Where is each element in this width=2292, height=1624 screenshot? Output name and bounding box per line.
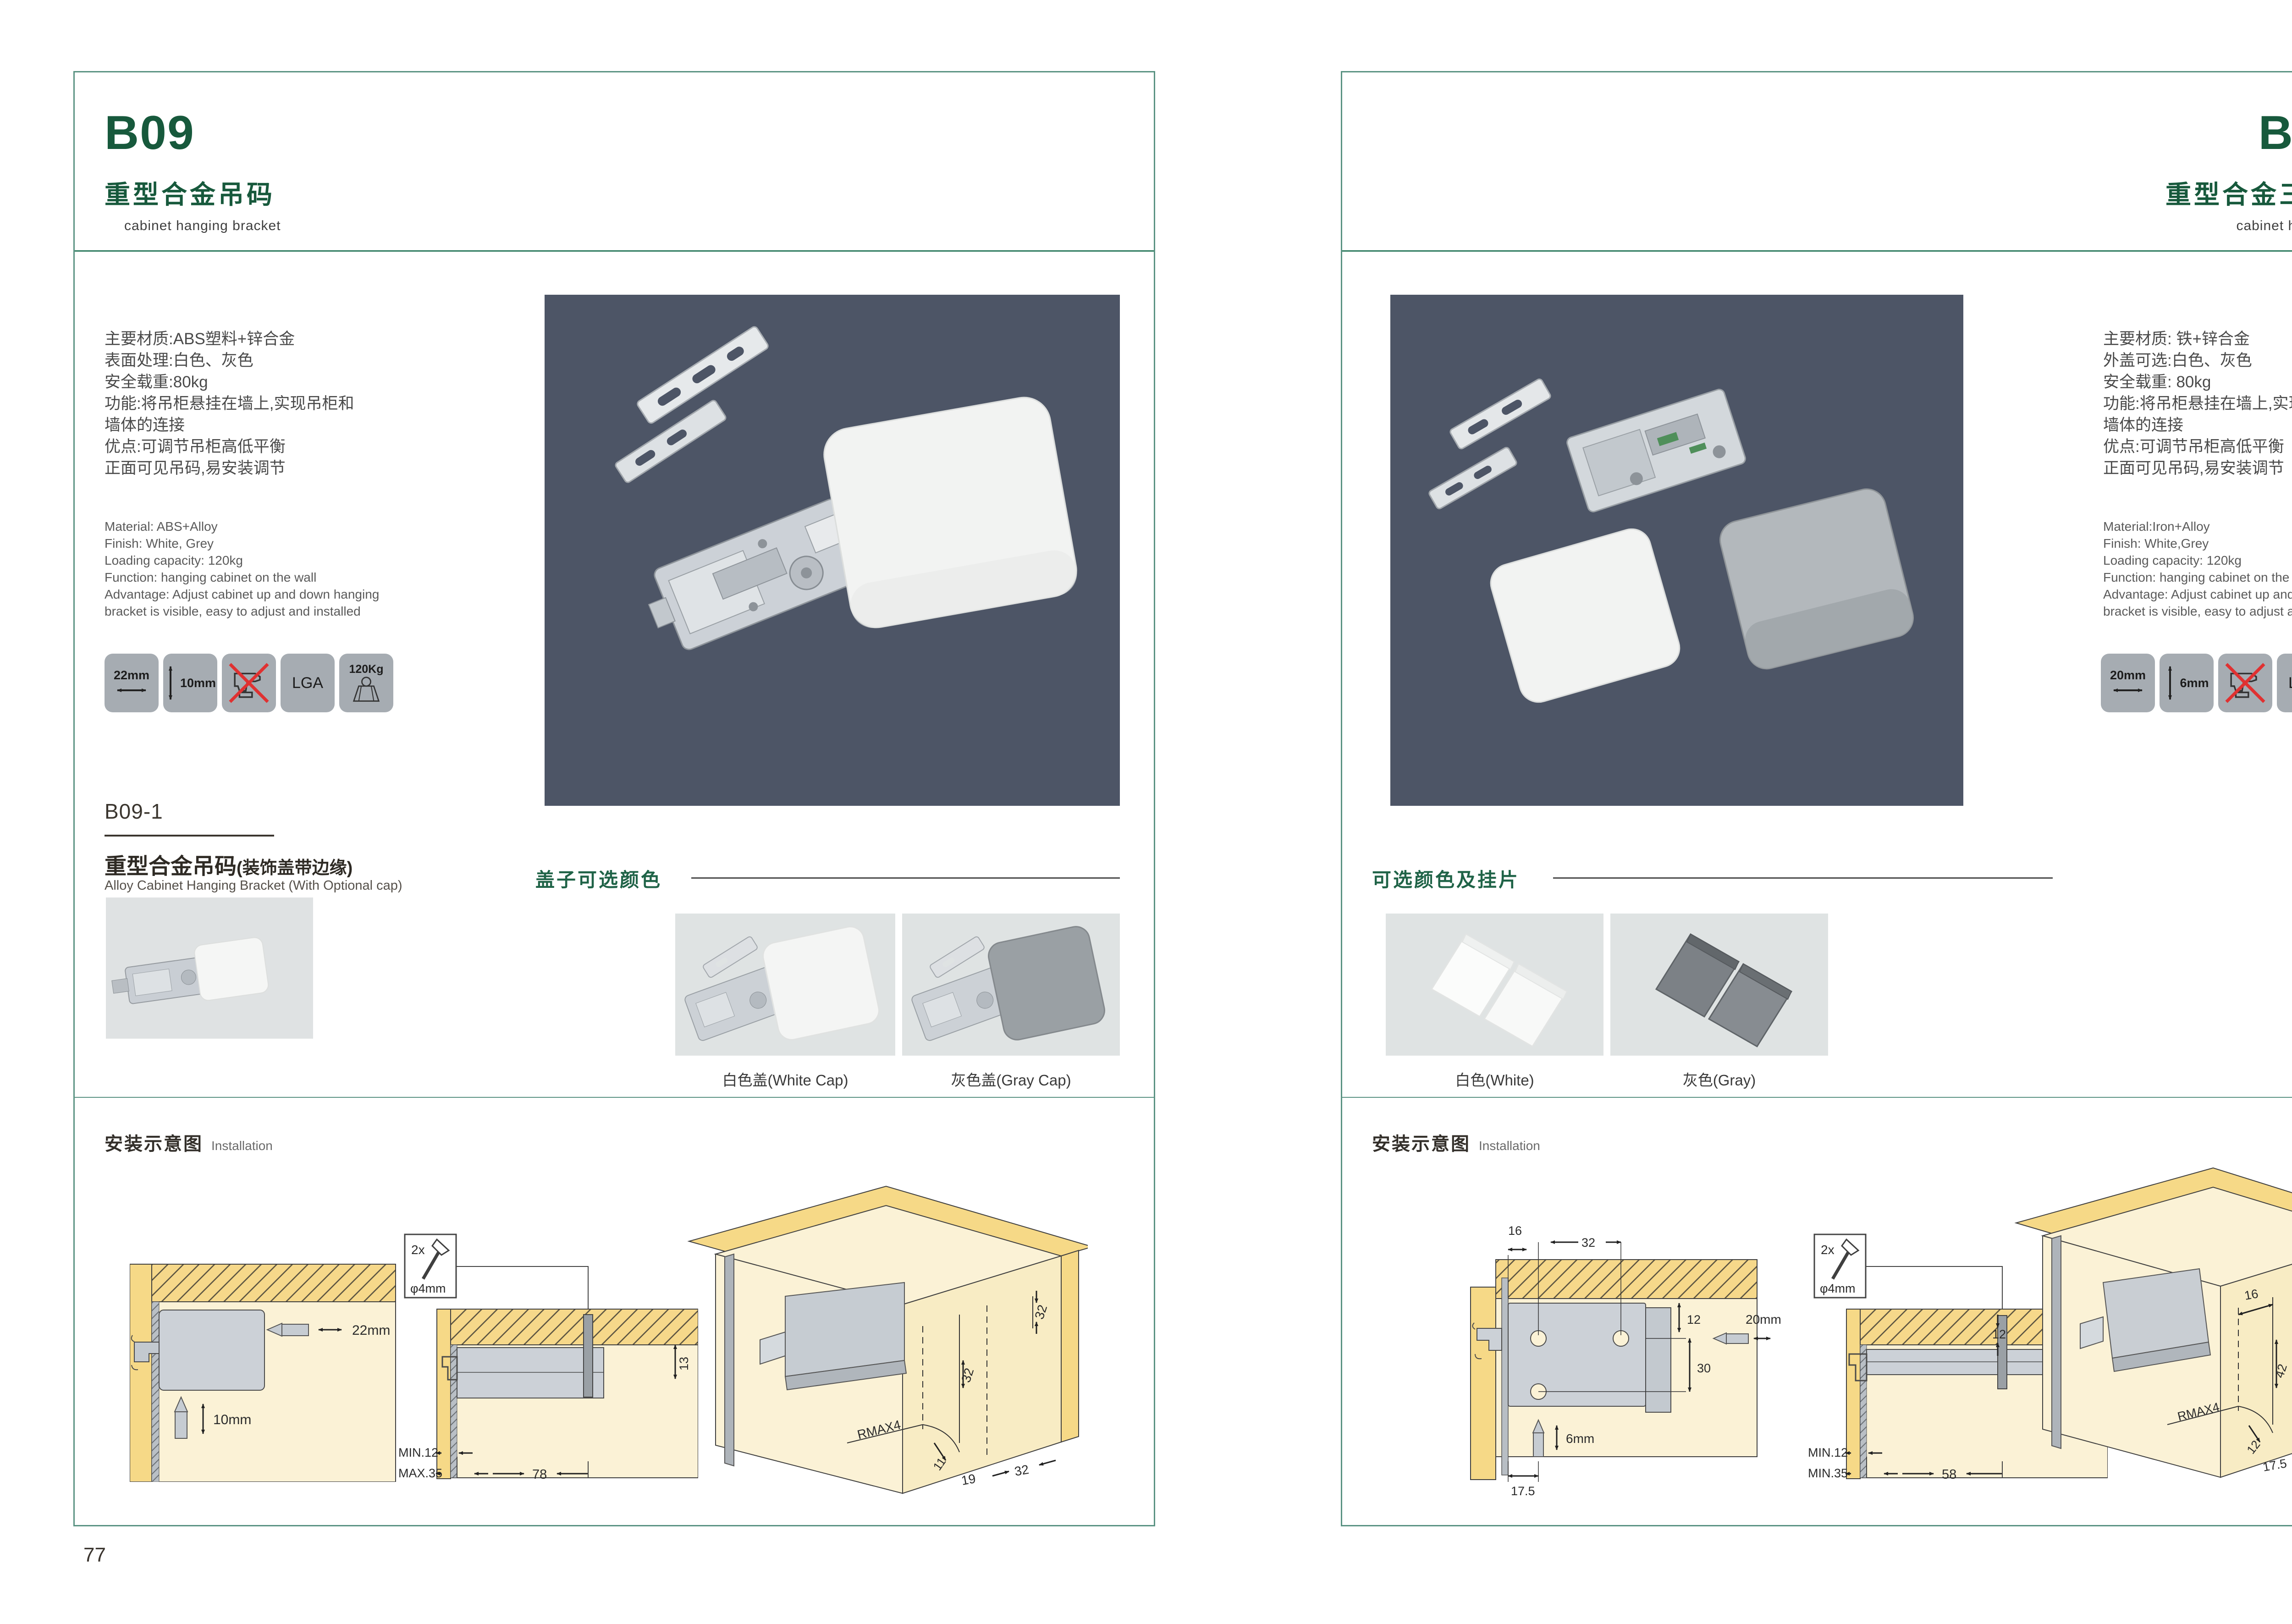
spec-line: 优点:可调节吊柜高低平衡 bbox=[2103, 436, 2292, 457]
spec-line: 正面可见吊码,易安装调节 bbox=[2103, 457, 2292, 479]
installation-heading-en: Installation bbox=[211, 1139, 273, 1153]
install-diagram-section: 16 32 12 30 20mm 6mm 17.5 bbox=[1466, 1214, 1787, 1498]
install-diagram-cross: 2x φ4mm 13 MIN.12 MAX.35 78 bbox=[391, 1228, 698, 1493]
specs-cn-block: 主要材质:ABS塑料+锌合金 表面处理:白色、灰色 安全载重:80kg 功能:将… bbox=[105, 328, 354, 479]
svg-text:30: 30 bbox=[1697, 1361, 1711, 1375]
svg-text:22mm: 22mm bbox=[352, 1323, 390, 1338]
svg-text:12: 12 bbox=[1992, 1327, 2006, 1341]
svg-text:32: 32 bbox=[1581, 1236, 1595, 1250]
installation-heading-cn: 安装示意图 bbox=[1372, 1134, 1471, 1154]
vertical-arrow-icon bbox=[165, 661, 176, 705]
cap-heading-rule bbox=[1553, 877, 2053, 879]
product-subtitle-en: cabinet hanging bracket bbox=[124, 218, 281, 234]
spec-line: Finish: White,Grey bbox=[2103, 535, 2292, 552]
main-product-photo bbox=[545, 295, 1120, 806]
spec-line: Finish: White, Grey bbox=[105, 535, 379, 552]
sub-product-code: B09-1 bbox=[105, 799, 163, 824]
spec-line: 外盖可选:白色、灰色 bbox=[2103, 350, 2292, 371]
page-number-left: 77 bbox=[83, 1544, 106, 1567]
cap-section-heading: 盖子可选颜色 bbox=[535, 864, 662, 892]
white-cap bbox=[820, 393, 1081, 632]
spec-line: 主要材质:ABS塑料+锌合金 bbox=[105, 328, 354, 350]
width-icon: 22mm bbox=[105, 654, 159, 712]
spec-line: Advantage: Adjust cabinet up and down ha… bbox=[105, 586, 379, 603]
height-label: 10mm bbox=[180, 676, 216, 690]
spec-line: 安全载重:80kg bbox=[105, 371, 354, 393]
installation-heading: 安装示意图Installation bbox=[105, 1129, 273, 1156]
white-cap-image bbox=[1386, 914, 1603, 1056]
spec-line: 正面可见吊码,易安装调节 bbox=[105, 457, 354, 479]
header-divider bbox=[1342, 250, 2292, 252]
gray-cap-image bbox=[1610, 914, 1828, 1056]
svg-text:58: 58 bbox=[1942, 1467, 1956, 1482]
svg-text:20mm: 20mm bbox=[1746, 1312, 1781, 1327]
spec-line: Function: hanging cabinet on the wall bbox=[105, 569, 379, 586]
sub-code-underline bbox=[105, 835, 274, 837]
height-icon: 6mm bbox=[2160, 654, 2214, 712]
lga-label: LGA bbox=[292, 674, 323, 692]
sub-title-note: (装饰盖带边缘) bbox=[237, 859, 353, 878]
product-subtitle-en: cabinet hanging bracket bbox=[2236, 218, 2292, 234]
spec-line: 表面处理:白色、灰色 bbox=[105, 350, 354, 371]
svg-text:MIN.35: MIN.35 bbox=[1808, 1466, 1848, 1480]
main-product-photo bbox=[1390, 295, 1963, 806]
spec-line: 功能:将吊柜悬挂在墙上,实现吊柜和 bbox=[2103, 393, 2292, 414]
sub-title-main: 重型合金吊码 bbox=[105, 854, 237, 879]
installation-heading: 安装示意图Installation bbox=[1372, 1129, 1540, 1156]
spec-line: Material:Iron+Alloy bbox=[2103, 518, 2292, 535]
spec-icon-row: 22mm 10mm LGA 120Kg bbox=[105, 654, 393, 712]
cap-section-heading: 可选颜色及挂片 bbox=[1372, 864, 1520, 892]
spec-line: 墙体的连接 bbox=[105, 414, 354, 436]
catalog-page-right: B09-3 重型合金三孔吊码 cabinet hanging bracket bbox=[1341, 71, 2292, 1526]
spec-line: 墙体的连接 bbox=[2103, 414, 2292, 436]
white-cap-label: 白色(White) bbox=[1386, 1068, 1603, 1090]
svg-text:MIN.12: MIN.12 bbox=[398, 1446, 438, 1459]
gray-cap-label: 灰色盖(Gray Cap) bbox=[902, 1068, 1120, 1090]
install-diagram-section: 22mm 10mm bbox=[130, 1239, 405, 1482]
install-diagram-perspective: 32 32 RMAX4 11 19 32 bbox=[666, 1145, 1088, 1498]
height-icon: 10mm bbox=[163, 654, 217, 712]
section-divider bbox=[1342, 1097, 2292, 1098]
sub-product-image bbox=[106, 897, 313, 1039]
svg-text:10mm: 10mm bbox=[213, 1412, 251, 1427]
svg-text:2x: 2x bbox=[1821, 1243, 1835, 1257]
no-drill-icon bbox=[2218, 654, 2272, 712]
width-icon: 20mm bbox=[2101, 654, 2155, 712]
header-divider bbox=[75, 250, 1154, 252]
spec-line: bracket is visible, easy to adjust and i… bbox=[2103, 603, 2292, 620]
spec-line: 功能:将吊柜悬挂在墙上,实现吊柜和 bbox=[105, 393, 354, 414]
product-title-cn: 重型合金三孔吊码 bbox=[2165, 174, 2292, 211]
installation-heading-en: Installation bbox=[1479, 1139, 1540, 1153]
spec-line: Advantage: Adjust cabinet up and down ha… bbox=[2103, 586, 2292, 603]
lga-icon: LGA bbox=[281, 654, 335, 712]
lga-icon: LGA bbox=[2277, 654, 2292, 712]
product-code: B09 bbox=[105, 109, 195, 157]
installation-heading-cn: 安装示意图 bbox=[105, 1134, 203, 1154]
specs-en-block: Material: ABS+Alloy Finish: White, Grey … bbox=[105, 518, 379, 620]
catalog-page-left: B09 重型合金吊码 cabinet hanging bracket 主要材质:… bbox=[73, 71, 1155, 1526]
product-title-cn: 重型合金吊码 bbox=[105, 174, 275, 211]
load-icon: 120Kg bbox=[339, 654, 393, 712]
svg-text:φ4mm: φ4mm bbox=[1820, 1282, 1856, 1295]
white-cap-label: 白色盖(White Cap) bbox=[675, 1068, 895, 1090]
svg-text:6mm: 6mm bbox=[1566, 1431, 1594, 1446]
svg-text:φ4mm: φ4mm bbox=[410, 1282, 446, 1295]
specs-en-block: Material:Iron+Alloy Finish: White,Grey L… bbox=[2103, 518, 2292, 620]
white-cap-image bbox=[675, 914, 895, 1056]
svg-text:MAX.35: MAX.35 bbox=[398, 1466, 442, 1480]
spec-line: 安全载重: 80kg bbox=[2103, 371, 2292, 393]
cap-heading-rule bbox=[691, 877, 1120, 879]
weight-glyph bbox=[348, 676, 384, 704]
spec-line: bracket is visible, easy to adjust and i… bbox=[105, 603, 379, 620]
load-label: 120Kg bbox=[349, 663, 383, 676]
install-diagram-perspective: 12 16 12 42 RMAX4 12 17.5 32 bbox=[1989, 1131, 2292, 1498]
svg-text:16: 16 bbox=[2243, 1287, 2259, 1303]
sub-product-title: 重型合金吊码(装饰盖带边缘) bbox=[105, 848, 353, 880]
svg-text:12: 12 bbox=[1687, 1313, 1701, 1327]
spec-line: Material: ABS+Alloy bbox=[105, 518, 379, 535]
spec-line: Loading capacity: 120kg bbox=[105, 552, 379, 569]
horizontal-arrow-icon bbox=[112, 683, 151, 698]
spec-line: Function: hanging cabinet on the wall bbox=[2103, 569, 2292, 586]
sub-product-title-en: Alloy Cabinet Hanging Bracket (With Opti… bbox=[105, 878, 402, 893]
svg-text:17.5: 17.5 bbox=[1511, 1484, 1535, 1498]
section-divider bbox=[75, 1097, 1154, 1098]
spec-icon-row: 20mm 6mm LGA 120Kg bbox=[2101, 654, 2292, 712]
height-label: 6mm bbox=[2180, 676, 2209, 690]
spec-line: Loading capacity: 120kg bbox=[2103, 552, 2292, 569]
specs-cn-block: 主要材质: 铁+锌合金 外盖可选:白色、灰色 安全载重: 80kg 功能:将吊柜… bbox=[2103, 328, 2292, 479]
gray-cap-label: 灰色(Gray) bbox=[1610, 1068, 1828, 1090]
lga-label: LGA bbox=[2288, 674, 2292, 692]
spec-line: 优点:可调节吊柜高低平衡 bbox=[105, 436, 354, 457]
svg-text:32: 32 bbox=[1014, 1462, 1030, 1479]
svg-text:MIN.12: MIN.12 bbox=[1808, 1446, 1848, 1459]
svg-text:2x: 2x bbox=[411, 1243, 425, 1257]
width-label: 22mm bbox=[114, 668, 149, 683]
no-drill-icon bbox=[222, 654, 276, 712]
gray-cap-image bbox=[902, 914, 1120, 1056]
width-label: 20mm bbox=[2110, 668, 2146, 683]
product-code: B09-3 bbox=[2259, 109, 2292, 157]
svg-text:16: 16 bbox=[1508, 1224, 1522, 1238]
spec-line: 主要材质: 铁+锌合金 bbox=[2103, 328, 2292, 350]
svg-text:19: 19 bbox=[960, 1471, 977, 1488]
svg-text:78: 78 bbox=[532, 1467, 547, 1482]
